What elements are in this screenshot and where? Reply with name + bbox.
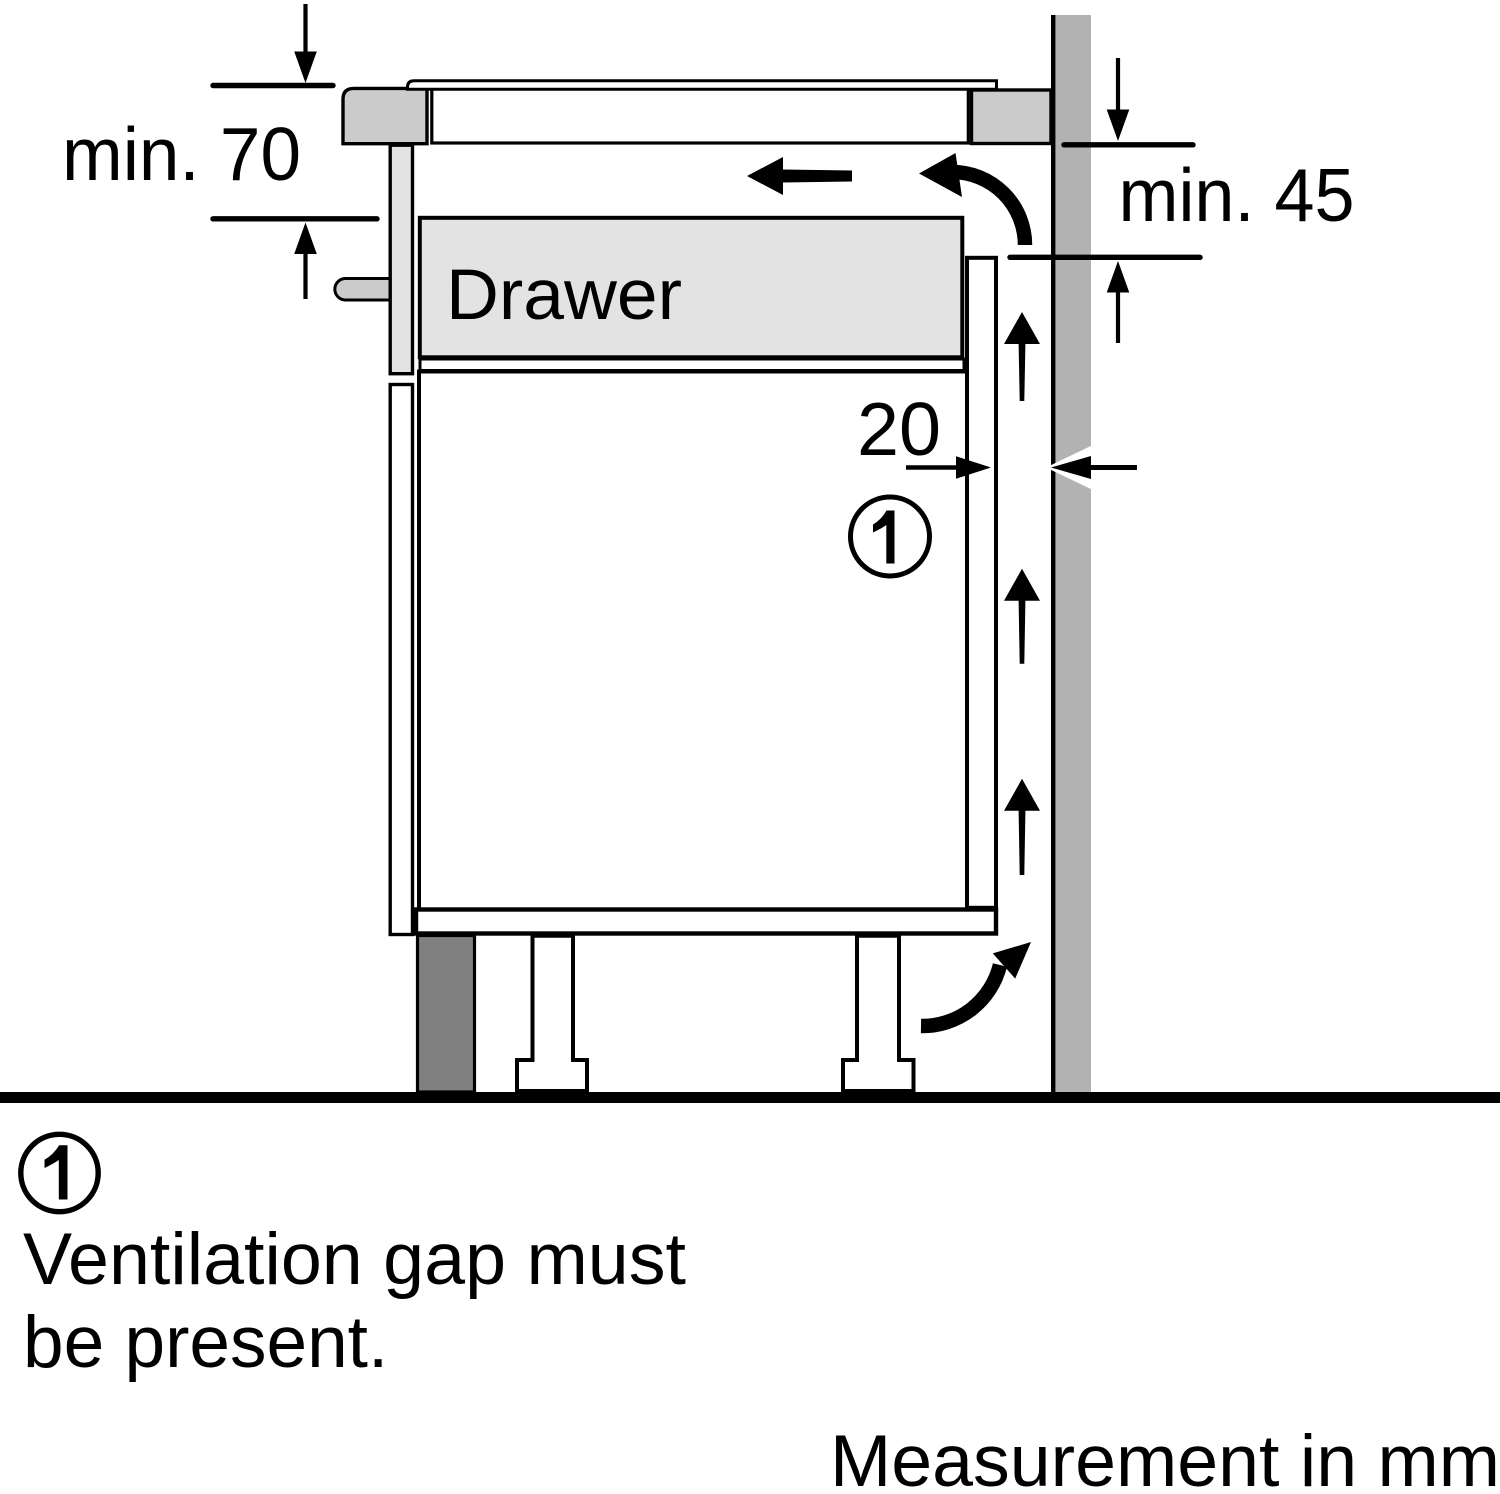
svg-text:min. 45: min. 45 — [1119, 153, 1355, 237]
svg-text:be present.: be present. — [23, 1302, 388, 1383]
svg-text:Drawer: Drawer — [446, 256, 682, 335]
svg-text:min. 70: min. 70 — [62, 112, 301, 196]
svg-text:Measurement in mm: Measurement in mm — [830, 1421, 1500, 1494]
svg-text:20: 20 — [857, 387, 941, 471]
svg-text:Ventilation gap must: Ventilation gap must — [23, 1219, 686, 1300]
